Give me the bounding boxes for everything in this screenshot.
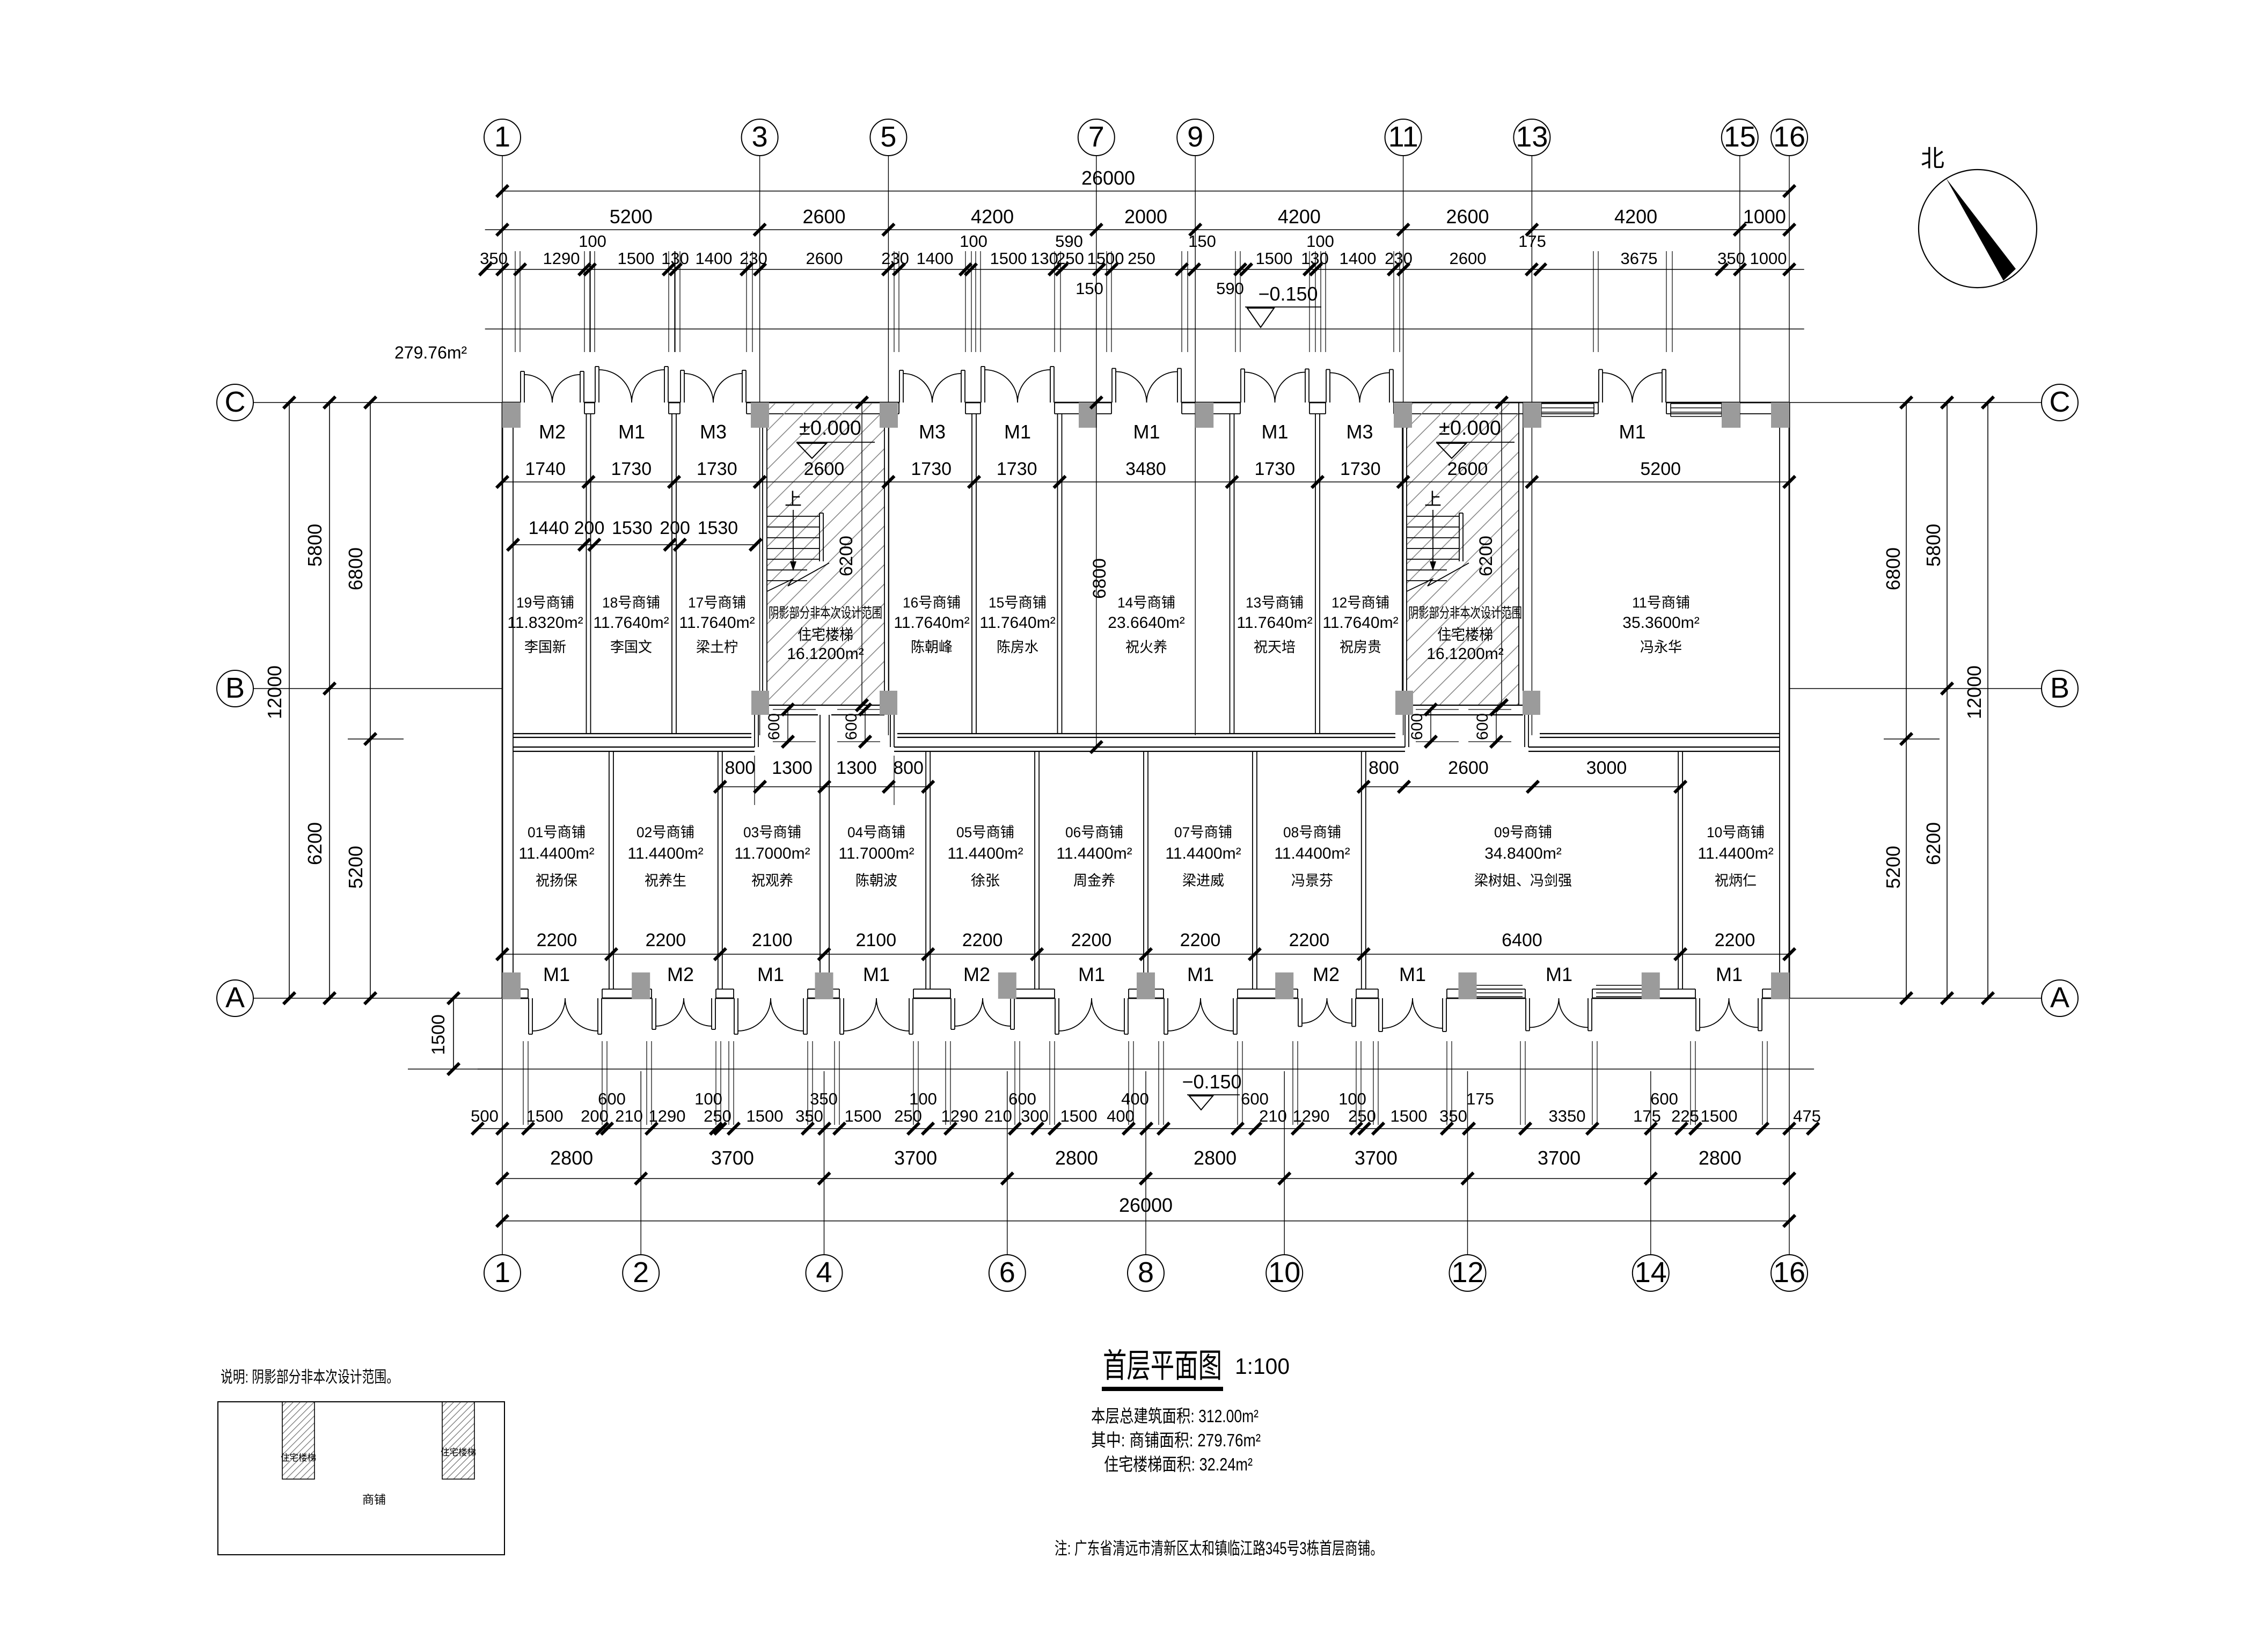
svg-text:M1: M1: [1619, 421, 1645, 443]
svg-text:100: 100: [960, 232, 987, 251]
svg-text:陈朝波: 陈朝波: [855, 873, 897, 889]
svg-text:M2: M2: [963, 963, 990, 985]
svg-text:10号商铺: 10号商铺: [1707, 824, 1765, 840]
svg-text:1730: 1730: [1340, 459, 1381, 479]
svg-text:12000: 12000: [1963, 665, 1985, 719]
svg-text:01号商铺: 01号商铺: [528, 824, 586, 840]
svg-text:A: A: [2050, 982, 2069, 1014]
svg-text:陈朝峰: 陈朝峰: [911, 639, 953, 655]
svg-text:首层平面图: 首层平面图: [1103, 1348, 1222, 1385]
svg-text:−0.150: −0.150: [1258, 283, 1318, 305]
svg-text:11.7000m²: 11.7000m²: [734, 845, 810, 862]
svg-text:11.7640m²: 11.7640m²: [1237, 614, 1312, 632]
svg-text:14号商铺: 14号商铺: [1117, 595, 1175, 611]
svg-text:1500: 1500: [990, 249, 1027, 268]
svg-text:09号商铺: 09号商铺: [1494, 824, 1552, 840]
svg-text:279.76m²: 279.76m²: [394, 343, 467, 362]
svg-text:350: 350: [810, 1089, 838, 1108]
svg-text:15: 15: [1724, 121, 1756, 153]
svg-text:250: 250: [1128, 249, 1155, 268]
svg-text:11.4400m²: 11.4400m²: [1698, 845, 1773, 862]
svg-text:2800: 2800: [1055, 1147, 1098, 1169]
svg-text:02号商铺: 02号商铺: [636, 824, 694, 840]
svg-text:7: 7: [1088, 121, 1104, 153]
svg-text:M3: M3: [700, 421, 727, 443]
svg-text:16: 16: [1773, 1256, 1805, 1289]
svg-text:上: 上: [1424, 489, 1442, 509]
svg-text:250: 250: [704, 1107, 731, 1125]
svg-text:1300: 1300: [772, 758, 813, 778]
svg-text:5800: 5800: [1922, 524, 1944, 567]
svg-text:M3: M3: [1346, 421, 1373, 443]
svg-text:2200: 2200: [1289, 930, 1330, 950]
svg-text:6200: 6200: [836, 536, 857, 576]
svg-text:600: 600: [1408, 713, 1426, 740]
svg-text:5: 5: [880, 121, 896, 153]
svg-text:周金养: 周金养: [1073, 873, 1115, 889]
svg-text:2200: 2200: [1071, 930, 1112, 950]
svg-text:徐张: 徐张: [971, 873, 1000, 889]
svg-text:A: A: [225, 982, 245, 1014]
svg-text:1730: 1730: [911, 459, 952, 479]
svg-text:350: 350: [480, 249, 508, 268]
svg-text:B: B: [2050, 672, 2069, 704]
svg-text:800: 800: [725, 758, 756, 778]
svg-text:175: 175: [1633, 1107, 1661, 1125]
svg-text:5200: 5200: [345, 846, 367, 889]
svg-text:16号商铺: 16号商铺: [903, 595, 961, 611]
svg-text:600: 600: [1474, 713, 1491, 740]
svg-text:2200: 2200: [1180, 930, 1221, 950]
svg-text:1400: 1400: [1340, 249, 1377, 268]
svg-text:1500: 1500: [1391, 1107, 1428, 1125]
svg-text:祝观养: 祝观养: [751, 873, 793, 889]
svg-text:2600: 2600: [806, 249, 843, 268]
svg-text:2: 2: [633, 1256, 649, 1289]
svg-text:阴影部分非本次设计范围: 阴影部分非本次设计范围: [769, 605, 882, 621]
svg-text:冯永华: 冯永华: [1640, 639, 1682, 655]
svg-text:350: 350: [1717, 249, 1745, 268]
svg-text:M1: M1: [1078, 963, 1105, 985]
svg-text:M1: M1: [543, 963, 570, 985]
svg-text:350: 350: [1439, 1107, 1467, 1125]
svg-text:M1: M1: [1187, 963, 1214, 985]
svg-text:9: 9: [1187, 121, 1203, 153]
svg-text:1290: 1290: [543, 249, 580, 268]
svg-text:M1: M1: [1399, 963, 1426, 985]
svg-text:4200: 4200: [1278, 206, 1321, 228]
svg-text:2800: 2800: [1699, 1147, 1742, 1169]
svg-text:M1: M1: [1261, 421, 1288, 443]
svg-text:100: 100: [579, 232, 606, 251]
svg-text:26000: 26000: [1119, 1194, 1173, 1216]
svg-text:2600: 2600: [804, 459, 845, 479]
svg-text:210: 210: [615, 1107, 643, 1125]
svg-text:1000: 1000: [1743, 206, 1786, 228]
svg-text:100: 100: [1306, 232, 1334, 251]
svg-text:上: 上: [785, 489, 802, 509]
svg-text:11.7640m²: 11.7640m²: [593, 614, 669, 632]
svg-text:2200: 2200: [962, 930, 1003, 950]
svg-text:1730: 1730: [611, 459, 652, 479]
svg-text:2600: 2600: [1447, 459, 1488, 479]
svg-text:说明: 阴影部分非本次设计范围。: 说明: 阴影部分非本次设计范围。: [221, 1369, 399, 1386]
svg-text:11.4400m²: 11.4400m²: [1165, 845, 1241, 862]
svg-text:3: 3: [752, 121, 768, 153]
svg-text:注: 广东省清远市清新区太和镇临江路345号3栋首层商铺。: 注: 广东省清远市清新区太和镇临江路345号3栋首层商铺。: [1055, 1539, 1383, 1558]
svg-text:175: 175: [1518, 232, 1546, 251]
svg-text:3700: 3700: [1355, 1147, 1398, 1169]
svg-text:1530: 1530: [612, 518, 653, 538]
svg-text:M1: M1: [757, 963, 784, 985]
svg-text:2600: 2600: [802, 206, 845, 228]
svg-text:2200: 2200: [646, 930, 686, 950]
svg-text:阴影部分非本次设计范围: 阴影部分非本次设计范围: [1408, 605, 1522, 621]
svg-text:1400: 1400: [917, 249, 954, 268]
svg-text:−0.150: −0.150: [1182, 1071, 1241, 1093]
svg-text:250: 250: [1348, 1107, 1376, 1125]
svg-text:07号商铺: 07号商铺: [1174, 824, 1232, 840]
svg-text:11.4400m²: 11.4400m²: [518, 845, 594, 862]
svg-text:祝天培: 祝天培: [1254, 639, 1296, 655]
svg-text:4: 4: [816, 1256, 832, 1289]
svg-text:6200: 6200: [1476, 536, 1496, 576]
svg-text:500: 500: [471, 1107, 499, 1125]
svg-text:23.6640m²: 23.6640m²: [1108, 614, 1184, 632]
svg-text:08号商铺: 08号商铺: [1283, 824, 1341, 840]
svg-text:200: 200: [660, 518, 690, 538]
svg-text:住宅楼梯面积: 32.24m²: 住宅楼梯面积: 32.24m²: [1104, 1454, 1253, 1474]
svg-text:11.4400m²: 11.4400m²: [947, 845, 1023, 862]
svg-text:1400: 1400: [696, 249, 733, 268]
svg-text:200: 200: [581, 1107, 609, 1125]
svg-text:1730: 1730: [1254, 459, 1295, 479]
svg-text:1500: 1500: [747, 1107, 784, 1125]
svg-text:11.4400m²: 11.4400m²: [1274, 845, 1350, 862]
svg-text:C: C: [225, 386, 246, 418]
svg-text:11.7000m²: 11.7000m²: [838, 845, 914, 862]
svg-text:5200: 5200: [1640, 459, 1681, 479]
svg-text:18号商铺: 18号商铺: [602, 595, 660, 611]
svg-text:1440: 1440: [529, 518, 569, 538]
svg-text:1730: 1730: [997, 459, 1037, 479]
svg-text:2600: 2600: [1450, 249, 1487, 268]
svg-text:13: 13: [1516, 121, 1548, 153]
svg-text:M2: M2: [539, 421, 566, 443]
svg-text:住宅楼梯: 住宅楼梯: [281, 1453, 316, 1463]
svg-text:3350: 3350: [1549, 1107, 1586, 1125]
svg-text:400: 400: [1107, 1107, 1135, 1125]
svg-text:800: 800: [1369, 758, 1399, 778]
svg-text:1500: 1500: [1060, 1107, 1098, 1125]
svg-text:住宅楼梯: 住宅楼梯: [1437, 626, 1493, 643]
svg-text:1500: 1500: [526, 1107, 564, 1125]
svg-text:住宅楼梯: 住宅楼梯: [798, 626, 853, 643]
svg-text:05号商铺: 05号商铺: [956, 824, 1014, 840]
svg-text:M1: M1: [1546, 963, 1572, 985]
svg-text:06号商铺: 06号商铺: [1065, 824, 1123, 840]
svg-text:2100: 2100: [752, 930, 793, 950]
svg-text:M2: M2: [667, 963, 694, 985]
svg-text:34.8400m²: 34.8400m²: [1484, 845, 1561, 862]
svg-text:600: 600: [1241, 1089, 1269, 1108]
svg-text:2000: 2000: [1124, 206, 1167, 228]
svg-text:1000: 1000: [1750, 249, 1787, 268]
svg-text:2600: 2600: [1446, 206, 1489, 228]
svg-text:2200: 2200: [1715, 930, 1755, 950]
svg-text:11.7640m²: 11.7640m²: [894, 614, 969, 632]
svg-text:4200: 4200: [971, 206, 1014, 228]
svg-text:2800: 2800: [1194, 1147, 1237, 1169]
svg-text:±0.000: ±0.000: [799, 417, 861, 440]
svg-text:3700: 3700: [711, 1147, 754, 1169]
svg-text:400: 400: [1121, 1089, 1149, 1108]
svg-text:2600: 2600: [1448, 758, 1489, 778]
svg-text:12000: 12000: [264, 665, 286, 719]
svg-text:3700: 3700: [894, 1147, 937, 1169]
svg-text:陈房水: 陈房水: [997, 639, 1038, 655]
svg-text:1: 1: [494, 121, 510, 153]
svg-text:1500: 1500: [1701, 1107, 1738, 1125]
svg-text:15号商铺: 15号商铺: [989, 595, 1047, 611]
svg-text:10: 10: [1268, 1256, 1300, 1289]
svg-text:1740: 1740: [525, 459, 566, 479]
svg-text:16: 16: [1773, 121, 1805, 153]
svg-text:300: 300: [1021, 1107, 1049, 1125]
svg-text:4200: 4200: [1614, 206, 1657, 228]
svg-text:16.1200m²: 16.1200m²: [1426, 645, 1503, 663]
svg-text:11.7640m²: 11.7640m²: [679, 614, 755, 632]
svg-text:B: B: [225, 672, 245, 704]
svg-text:C: C: [2050, 386, 2071, 418]
svg-text:12: 12: [1451, 1256, 1483, 1289]
svg-text:8: 8: [1138, 1256, 1154, 1289]
svg-text:03号商铺: 03号商铺: [743, 824, 801, 840]
svg-text:1: 1: [494, 1256, 510, 1289]
svg-text:210: 210: [984, 1107, 1012, 1125]
svg-text:14: 14: [1635, 1256, 1667, 1289]
svg-text:1:100: 1:100: [1235, 1353, 1290, 1379]
svg-text:1500: 1500: [618, 249, 655, 268]
svg-text:1290: 1290: [941, 1107, 978, 1125]
svg-text:1290: 1290: [649, 1107, 686, 1125]
svg-text:350: 350: [795, 1107, 823, 1125]
svg-text:6200: 6200: [1922, 822, 1944, 865]
svg-text:590: 590: [1055, 232, 1083, 251]
svg-text:2100: 2100: [855, 930, 896, 950]
svg-text:北: 北: [1921, 145, 1944, 172]
svg-text:225: 225: [1671, 1107, 1699, 1125]
svg-text:祝扬保: 祝扬保: [536, 873, 577, 889]
svg-text:1500: 1500: [428, 1014, 449, 1055]
svg-text:590: 590: [1216, 279, 1244, 298]
svg-text:13号商铺: 13号商铺: [1246, 595, 1304, 611]
svg-text:35.3600m²: 35.3600m²: [1622, 614, 1699, 632]
svg-text:梁进威: 梁进威: [1182, 873, 1224, 889]
svg-text:祝火养: 祝火养: [1125, 639, 1167, 655]
svg-text:19号商铺: 19号商铺: [516, 595, 574, 611]
svg-text:商铺: 商铺: [362, 1493, 386, 1506]
svg-text:1530: 1530: [698, 518, 738, 538]
svg-text:李国新: 李国新: [524, 639, 566, 655]
svg-text:11号商铺: 11号商铺: [1632, 595, 1690, 611]
svg-text:150: 150: [1076, 279, 1103, 298]
svg-text:M1: M1: [863, 963, 890, 985]
svg-text:M1: M1: [618, 421, 645, 443]
svg-text:100: 100: [694, 1089, 722, 1108]
svg-text:100: 100: [1338, 1089, 1366, 1108]
svg-text:130: 130: [1030, 249, 1058, 268]
svg-text:11.7640m²: 11.7640m²: [979, 614, 1055, 632]
svg-text:2800: 2800: [550, 1147, 593, 1169]
svg-text:16.1200m²: 16.1200m²: [787, 645, 864, 663]
svg-text:5800: 5800: [304, 524, 326, 567]
svg-text:3675: 3675: [1621, 249, 1658, 268]
svg-text:600: 600: [1008, 1089, 1036, 1108]
svg-text:6800: 6800: [1089, 558, 1110, 599]
svg-text:175: 175: [1466, 1089, 1494, 1108]
svg-text:11.7640m²: 11.7640m²: [1322, 614, 1398, 632]
svg-text:800: 800: [893, 758, 924, 778]
svg-text:6: 6: [999, 1256, 1015, 1289]
svg-text:祝房贵: 祝房贵: [1340, 639, 1381, 655]
svg-text:±0.000: ±0.000: [1439, 417, 1501, 440]
svg-text:17号商铺: 17号商铺: [688, 595, 746, 611]
svg-text:6400: 6400: [1502, 930, 1542, 950]
svg-text:M1: M1: [1004, 421, 1031, 443]
svg-text:5200: 5200: [1882, 846, 1904, 889]
svg-text:M3: M3: [919, 421, 946, 443]
svg-text:M2: M2: [1313, 963, 1340, 985]
svg-text:600: 600: [765, 713, 783, 740]
svg-text:04号商铺: 04号商铺: [847, 824, 905, 840]
svg-text:冯景芬: 冯景芬: [1291, 873, 1333, 889]
svg-text:600: 600: [843, 713, 860, 740]
svg-text:600: 600: [1650, 1089, 1678, 1108]
svg-text:李国文: 李国文: [610, 639, 652, 655]
svg-text:200: 200: [574, 518, 605, 538]
svg-text:梁土柠: 梁土柠: [696, 639, 738, 655]
svg-text:梁树姐、冯剑强: 梁树姐、冯剑强: [1474, 873, 1572, 889]
svg-text:11.8320m²: 11.8320m²: [507, 614, 583, 632]
svg-text:住宅楼梯: 住宅楼梯: [441, 1447, 476, 1458]
svg-text:11.4400m²: 11.4400m²: [627, 845, 703, 862]
svg-text:1300: 1300: [836, 758, 877, 778]
svg-text:2200: 2200: [537, 930, 577, 950]
svg-text:5200: 5200: [610, 206, 653, 228]
svg-text:12号商铺: 12号商铺: [1331, 595, 1389, 611]
svg-text:其中: 商铺面积: 279.76m²: 其中: 商铺面积: 279.76m²: [1091, 1430, 1261, 1450]
svg-text:11: 11: [1388, 121, 1418, 153]
svg-text:150: 150: [1188, 232, 1216, 251]
svg-text:26000: 26000: [1081, 167, 1135, 189]
svg-text:本层总建筑面积: 312.00m²: 本层总建筑面积: 312.00m²: [1091, 1406, 1259, 1426]
svg-text:1500: 1500: [1256, 249, 1293, 268]
svg-text:6800: 6800: [1882, 547, 1904, 590]
svg-text:1730: 1730: [697, 459, 737, 479]
svg-text:6200: 6200: [304, 822, 326, 865]
svg-text:1500: 1500: [845, 1107, 882, 1125]
svg-text:祝养生: 祝养生: [645, 873, 686, 889]
svg-text:M1: M1: [1716, 963, 1743, 985]
svg-text:210: 210: [1259, 1107, 1287, 1125]
svg-text:3700: 3700: [1538, 1147, 1581, 1169]
svg-text:祝炳仁: 祝炳仁: [1715, 873, 1757, 889]
svg-text:11.4400m²: 11.4400m²: [1056, 845, 1132, 862]
svg-text:M1: M1: [1133, 421, 1160, 443]
svg-text:3480: 3480: [1125, 459, 1166, 479]
svg-text:6800: 6800: [345, 547, 367, 590]
svg-text:3000: 3000: [1586, 758, 1627, 778]
svg-text:1290: 1290: [1293, 1107, 1330, 1125]
